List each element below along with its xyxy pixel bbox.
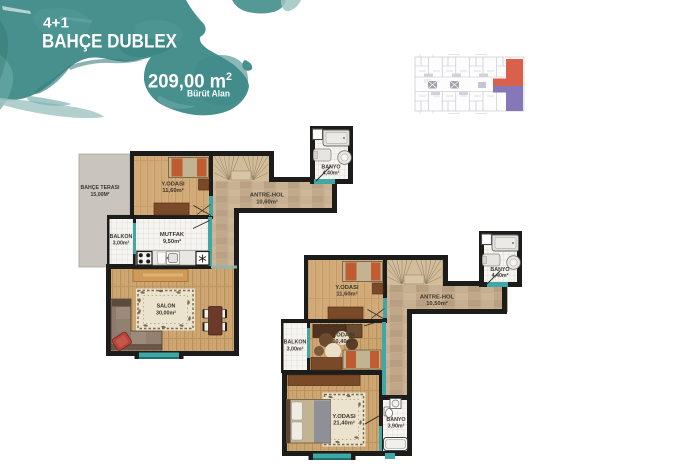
svg-text:4+1: 4+1 <box>43 15 69 32</box>
svg-text:4,40m²: 4,40m² <box>492 273 509 279</box>
svg-text:BAHÇE TERASI: BAHÇE TERASI <box>81 185 120 191</box>
svg-text:3,90m²: 3,90m² <box>388 424 405 430</box>
svg-text:Y.ODASI: Y.ODASI <box>335 285 359 291</box>
svg-text:4,40m²: 4,40m² <box>323 171 340 177</box>
svg-text:BAHÇE DUBLEX: BAHÇE DUBLEX <box>42 32 177 53</box>
svg-text:11,60m²: 11,60m² <box>162 187 183 194</box>
svg-text:Y.ODASI: Y.ODASI <box>331 333 355 339</box>
svg-text:15,00M²: 15,00M² <box>90 192 109 198</box>
svg-text:BALKON: BALKON <box>284 340 307 346</box>
svg-text:10,60m²: 10,60m² <box>256 199 278 206</box>
svg-text:10,40m²: 10,40m² <box>332 338 354 345</box>
svg-text:9,50m²: 9,50m² <box>163 238 181 245</box>
svg-text:BALKON: BALKON <box>110 234 133 240</box>
svg-text:3,00m²: 3,00m² <box>113 241 130 247</box>
svg-text:MUTFAK: MUTFAK <box>160 232 185 238</box>
svg-text:ANTRE-HOL: ANTRE-HOL <box>420 295 455 301</box>
svg-text:ANTRE-HOL: ANTRE-HOL <box>250 193 285 199</box>
svg-text:10,50m²: 10,50m² <box>426 300 448 307</box>
svg-text:21,40m²: 21,40m² <box>333 420 355 427</box>
svg-text:SALON: SALON <box>157 304 176 310</box>
svg-text:3,00m²: 3,00m² <box>287 347 304 353</box>
svg-text:30,00m²: 30,00m² <box>156 311 176 317</box>
svg-text:BANYO: BANYO <box>386 417 405 423</box>
svg-text:Bürüt Alan: Bürüt Alan <box>187 89 230 99</box>
svg-text:Y.ODASI: Y.ODASI <box>332 414 356 420</box>
svg-text:Y.ODASI: Y.ODASI <box>161 182 185 188</box>
svg-text:11,60m²: 11,60m² <box>336 291 357 298</box>
